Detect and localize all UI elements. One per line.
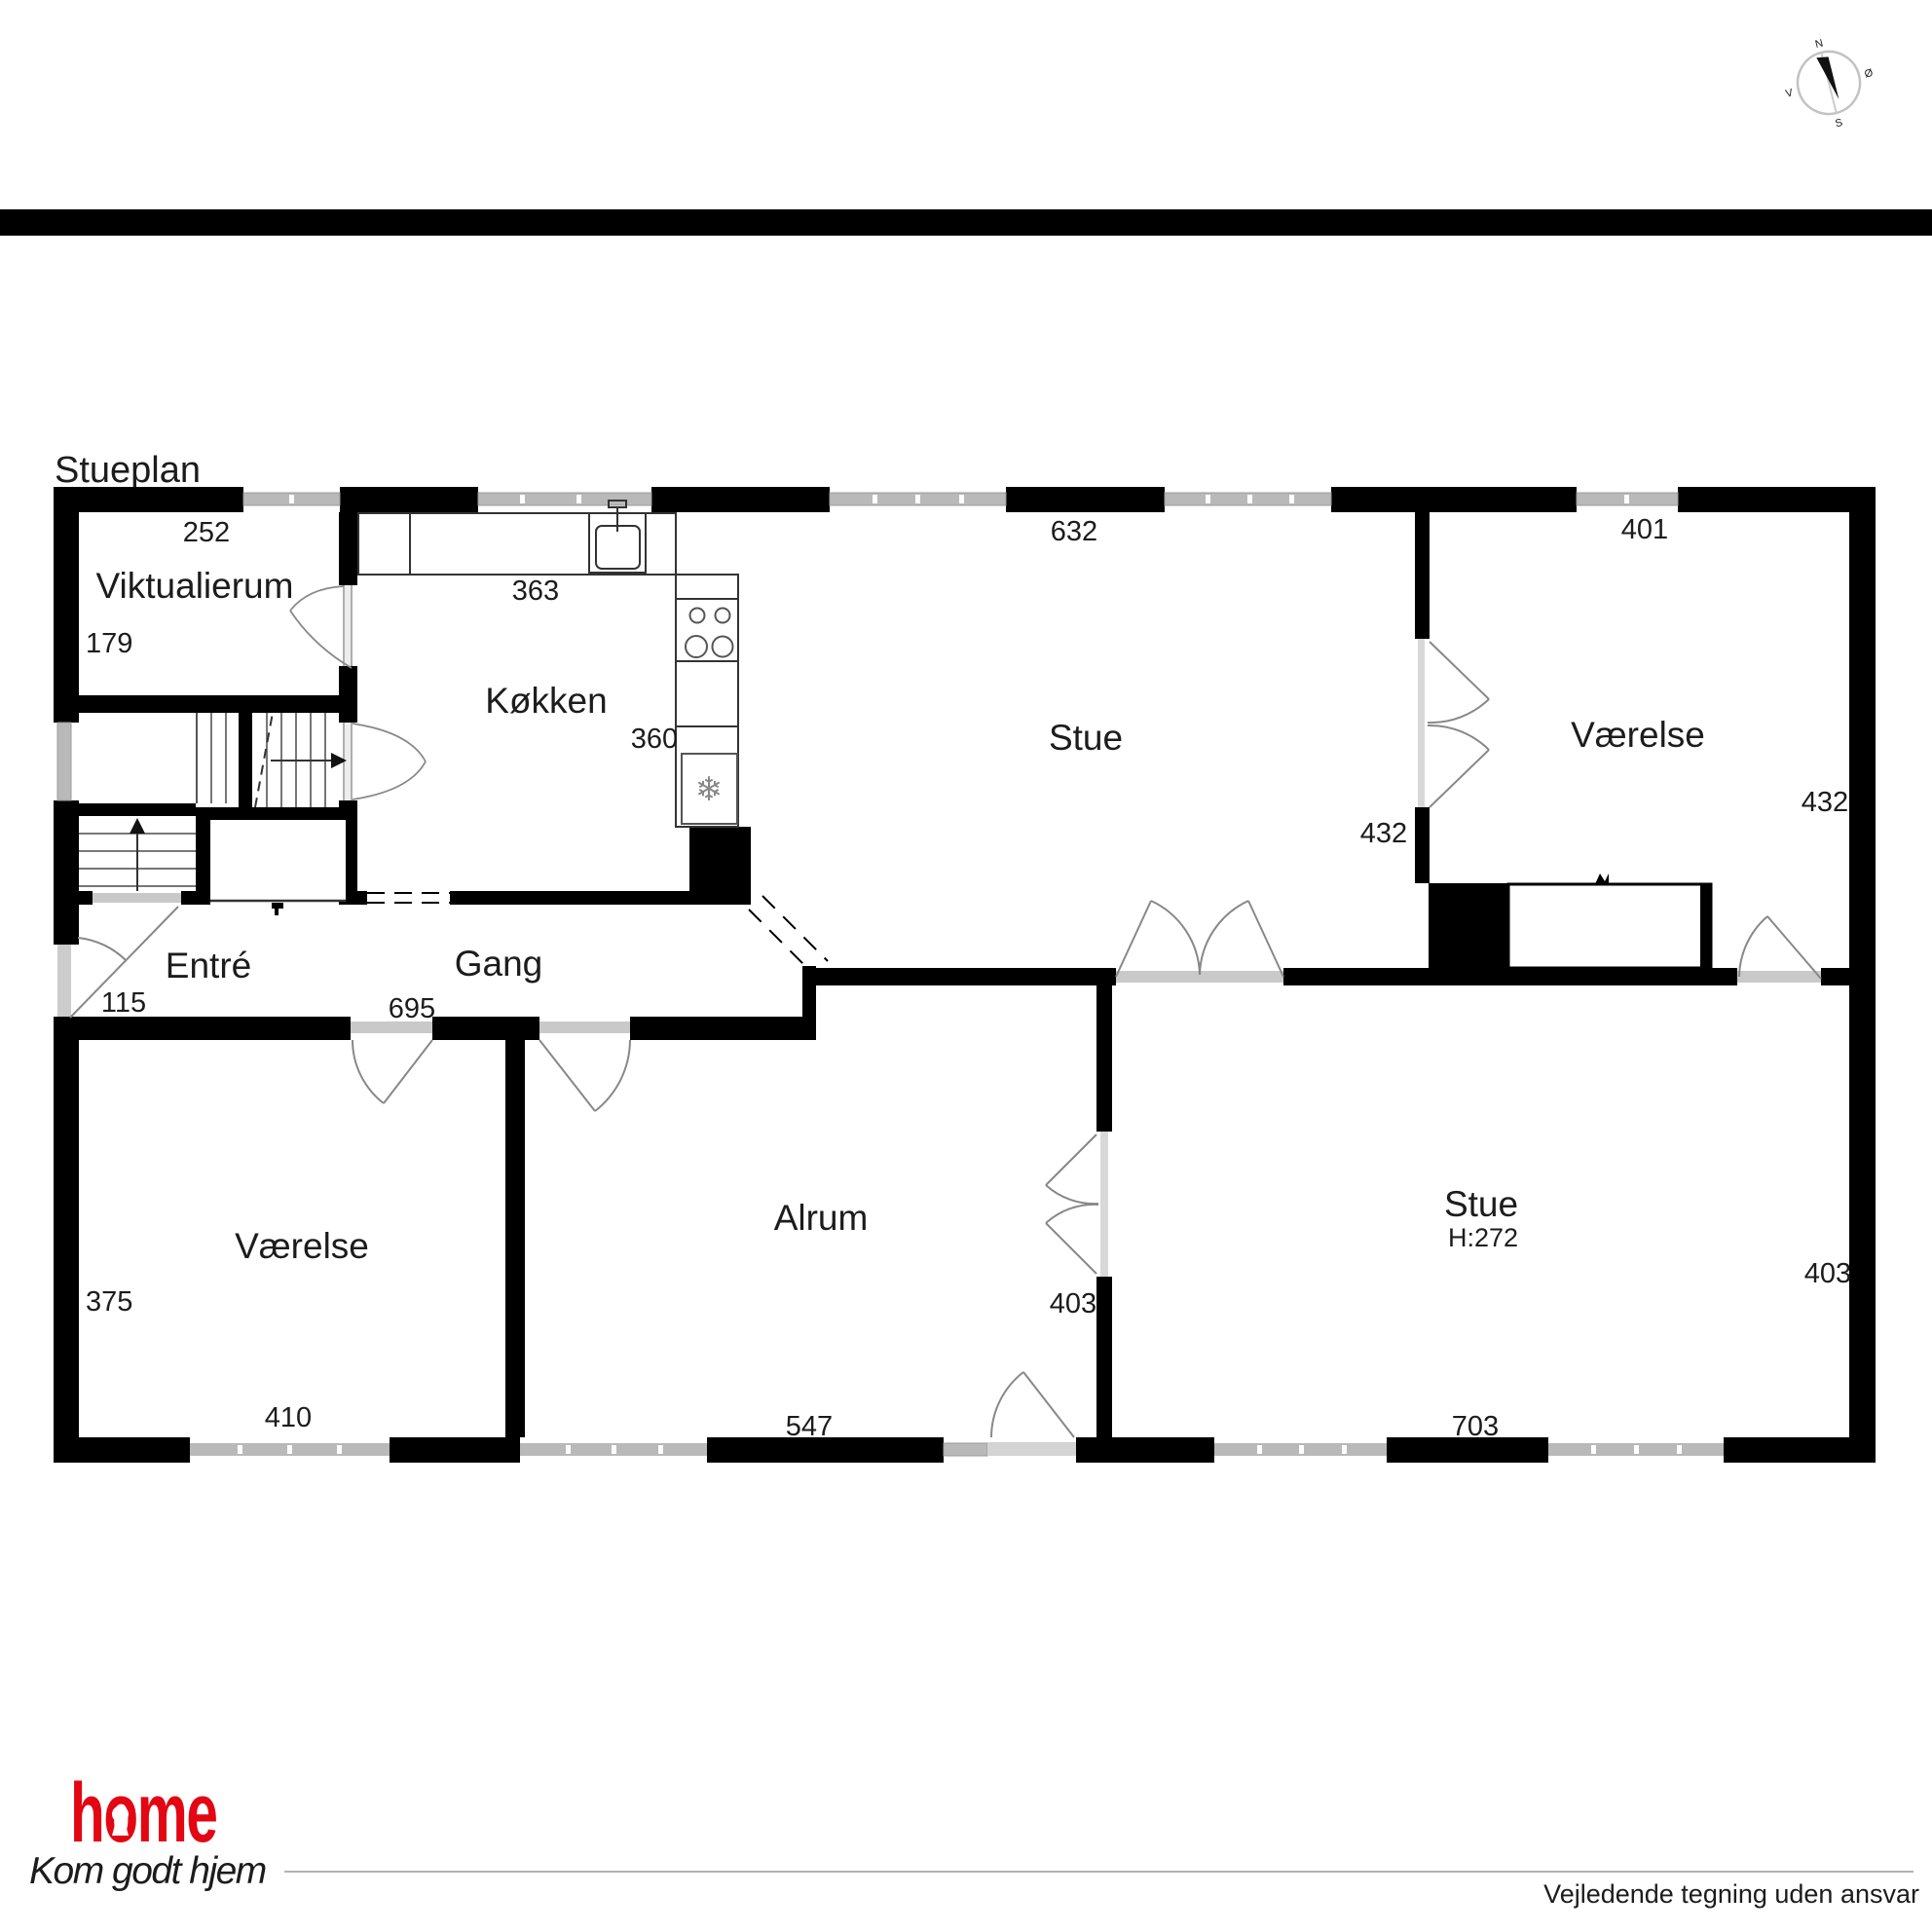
svg-text:Stue: Stue [1049, 718, 1123, 758]
svg-text:432: 432 [1360, 818, 1407, 849]
svg-text:179: 179 [86, 628, 132, 659]
svg-text:Stue: Stue [1444, 1184, 1518, 1224]
svg-text:Værelse: Værelse [1571, 715, 1705, 755]
svg-text:Gang: Gang [455, 944, 543, 984]
svg-text:401: 401 [1621, 514, 1668, 545]
svg-text:703: 703 [1452, 1411, 1499, 1442]
svg-text:Værelse: Værelse [235, 1226, 369, 1266]
svg-text:375: 375 [86, 1286, 132, 1318]
svg-text:H:272: H:272 [1448, 1223, 1518, 1252]
svg-text:432: 432 [1802, 787, 1848, 818]
svg-text:632: 632 [1051, 516, 1097, 547]
svg-text:Viktualierum: Viktualierum [96, 566, 294, 606]
svg-text:Entré: Entré [166, 946, 251, 985]
svg-text:695: 695 [389, 993, 435, 1024]
svg-text:403: 403 [1050, 1288, 1096, 1319]
svg-text:Vejledende tegning uden ansvar: Vejledende tegning uden ansvar [1543, 1879, 1919, 1909]
svg-text:252: 252 [183, 517, 230, 548]
svg-text:home: home [70, 1765, 216, 1860]
svg-text:547: 547 [786, 1411, 833, 1442]
svg-text:❄: ❄ [695, 771, 724, 808]
svg-text:Kom godt hjem: Kom godt hjem [29, 1850, 266, 1892]
svg-text:363: 363 [512, 576, 559, 607]
svg-text:410: 410 [265, 1402, 312, 1433]
svg-text:360: 360 [631, 724, 678, 755]
svg-text:403: 403 [1804, 1258, 1851, 1289]
svg-text:115: 115 [101, 987, 146, 1019]
svg-text:Køkken: Køkken [485, 681, 607, 721]
svg-text:Alrum: Alrum [774, 1198, 869, 1238]
svg-text:Stueplan: Stueplan [55, 450, 201, 491]
